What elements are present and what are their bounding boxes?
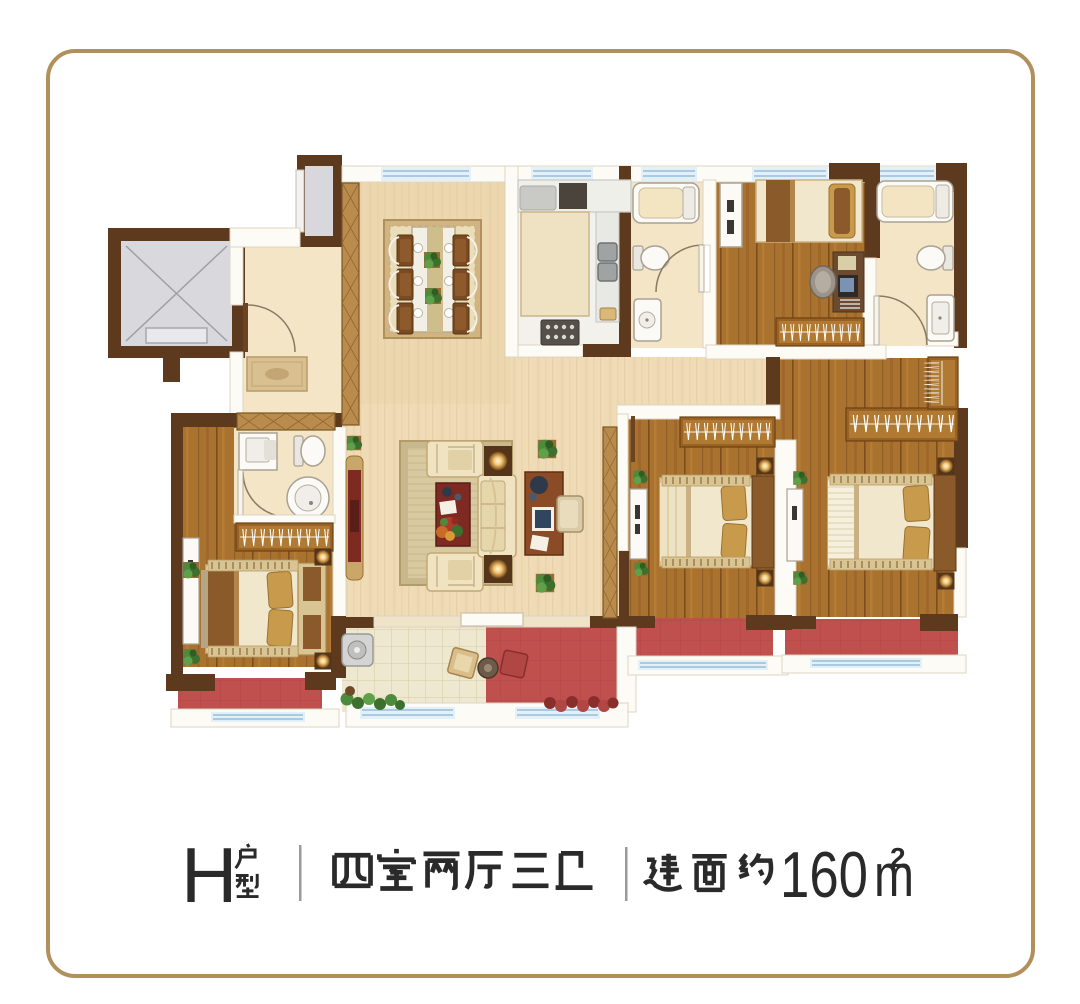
svg-text:H: H bbox=[181, 831, 237, 919]
svg-text:160: 160 bbox=[780, 838, 868, 911]
svg-text:2: 2 bbox=[890, 842, 906, 873]
